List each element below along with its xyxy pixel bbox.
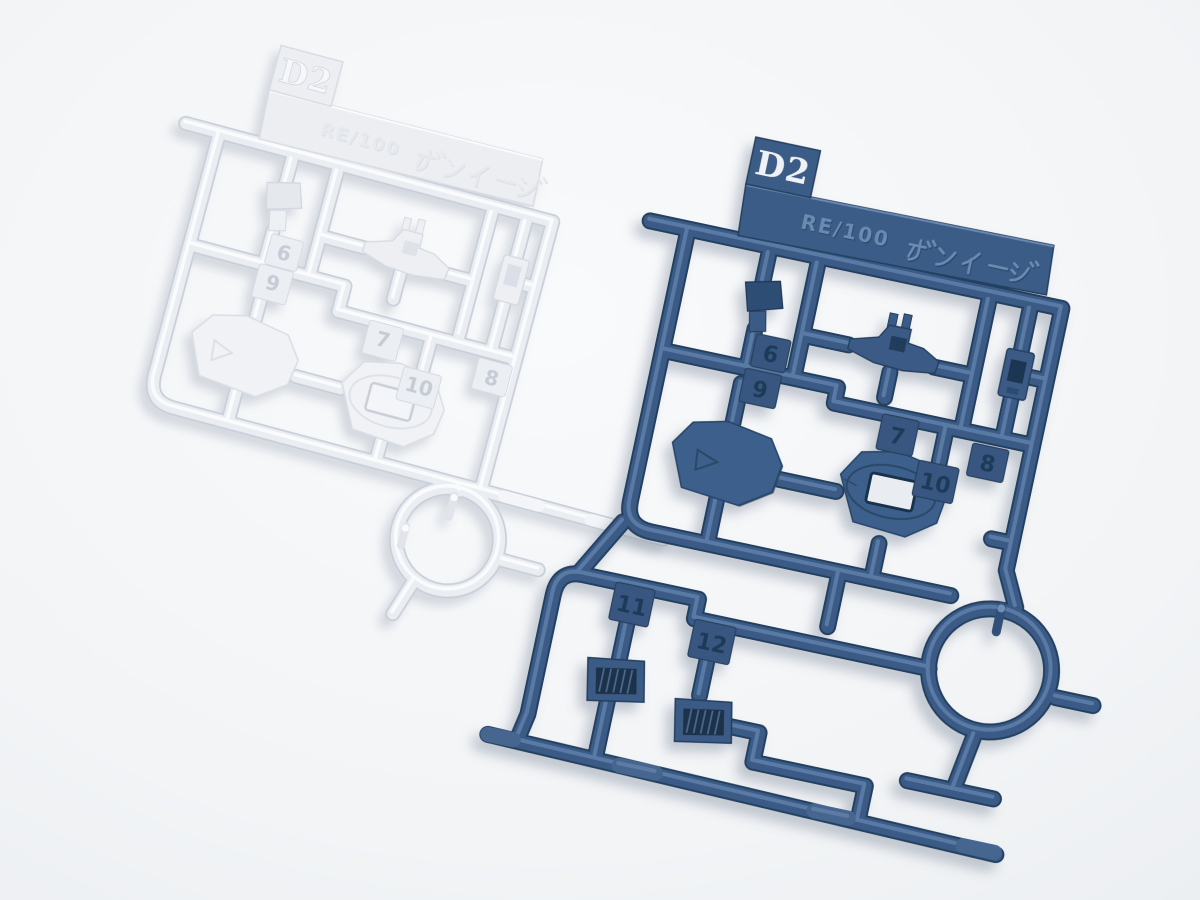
blue-part-tag-9: 9 xyxy=(739,368,782,409)
photo-canvas: D2 RE/100 RE/100 ガンイージ xyxy=(0,0,1200,900)
blue-part-tag-11: 11 xyxy=(608,582,655,627)
blue-part-tag-8: 8 xyxy=(966,443,1009,483)
blue-part-tag-12: 12 xyxy=(687,619,736,665)
blue-part-tag-6: 6 xyxy=(750,334,791,374)
blue-part-tag-7: 7 xyxy=(876,414,920,457)
blue-part-tag-10: 10 xyxy=(912,460,960,504)
